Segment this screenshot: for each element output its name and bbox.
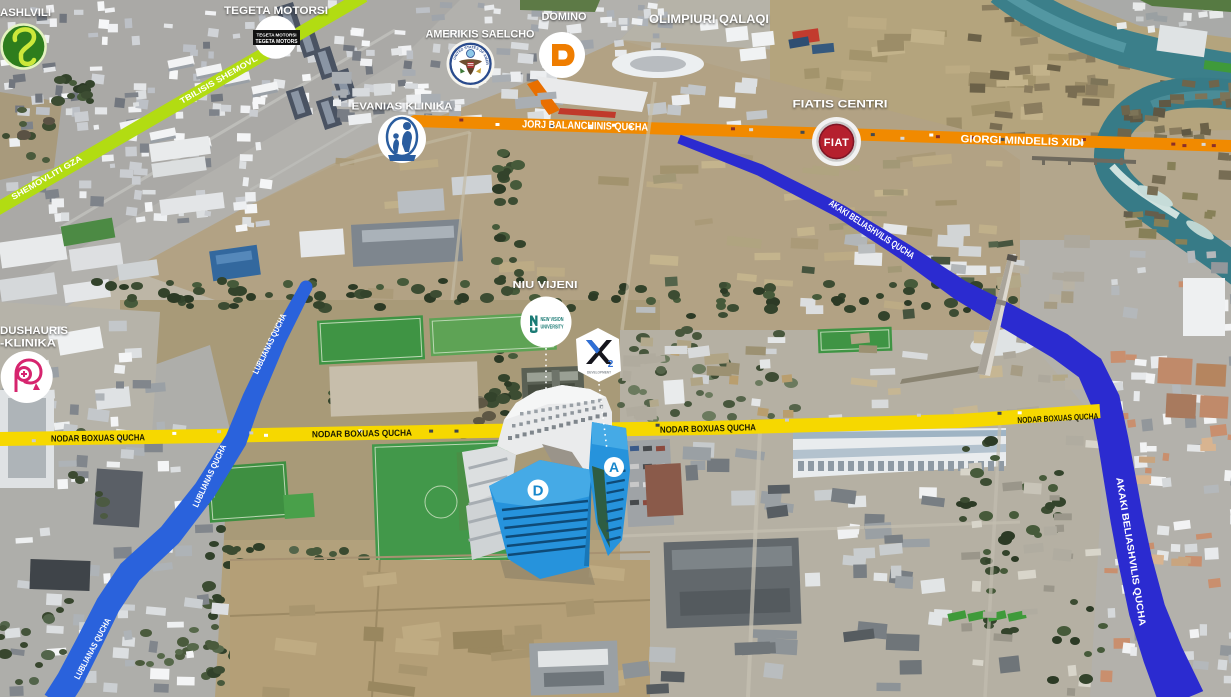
svg-text:TEGETA MOTORS: TEGETA MOTORS bbox=[256, 39, 298, 45]
svg-text:NIU VIJENI: NIU VIJENI bbox=[513, 279, 578, 291]
svg-text:DOMINO: DOMINO bbox=[542, 11, 587, 23]
svg-text:DEVELOPMENT: DEVELOPMENT bbox=[587, 371, 611, 375]
svg-text:EVANIAS KLINIKA: EVANIAS KLINIKA bbox=[352, 101, 453, 113]
svg-text:D: D bbox=[533, 483, 544, 500]
svg-text:NEW VISION: NEW VISION bbox=[541, 317, 564, 323]
svg-text:A: A bbox=[609, 459, 619, 475]
svg-text:NODAR BOXUAS QUCHA: NODAR BOXUAS QUCHA bbox=[51, 432, 146, 443]
svg-text:OLIMPIURI QALAQI: OLIMPIURI QALAQI bbox=[649, 12, 769, 26]
svg-text:2: 2 bbox=[608, 359, 614, 370]
svg-text:AMERIKIS SAELCHO: AMERIKIS SAELCHO bbox=[426, 29, 535, 41]
svg-text:UNIVERSITY: UNIVERSITY bbox=[541, 325, 564, 331]
svg-text:ASHLVILI: ASHLVILI bbox=[0, 7, 51, 19]
svg-text:TEGETA MOTORSI: TEGETA MOTORSI bbox=[224, 5, 328, 17]
svg-text:-KLINIKA: -KLINIKA bbox=[0, 338, 56, 350]
svg-text:TEGETA MOTORSI: TEGETA MOTORSI bbox=[257, 33, 298, 39]
svg-text:FIATIS CENTRI: FIATIS CENTRI bbox=[793, 99, 888, 111]
svg-text:DUSHAURIS: DUSHAURIS bbox=[0, 325, 68, 337]
svg-text:NODAR BOXUAS QUCHA: NODAR BOXUAS QUCHA bbox=[312, 428, 413, 440]
svg-text:FIAT: FIAT bbox=[824, 137, 850, 149]
